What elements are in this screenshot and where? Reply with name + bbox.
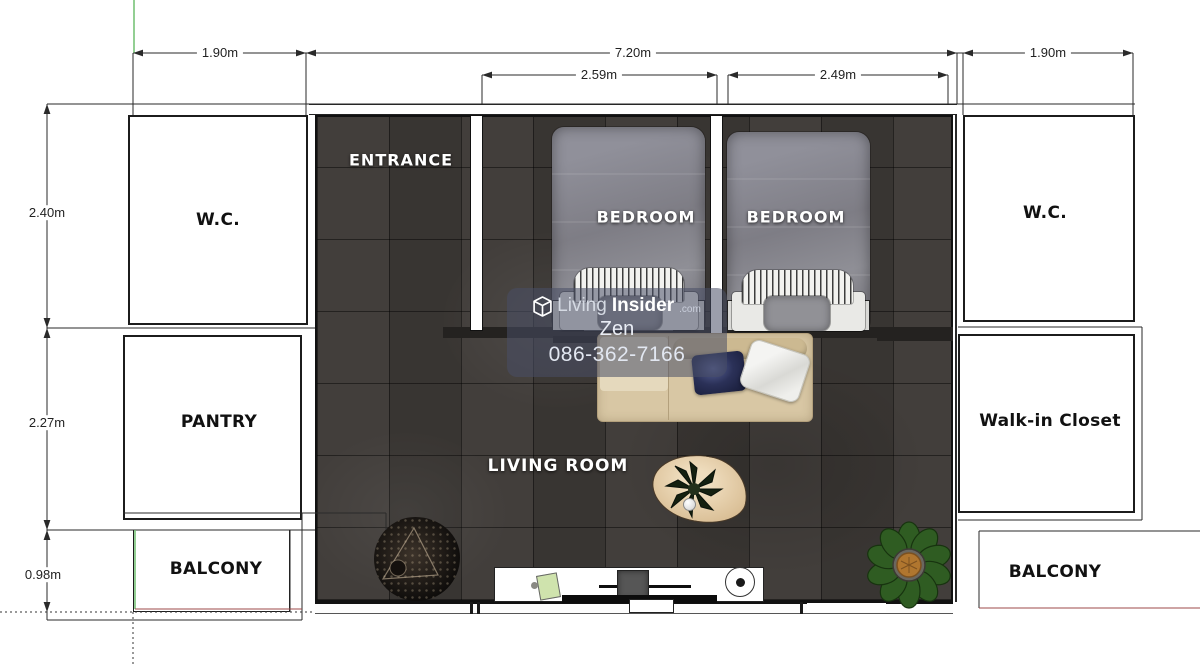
floor-plan: 1.90m 7.20m 1.90m 2.59m 2.49m 2.40m 2.27…	[0, 0, 1200, 667]
label-pantry: PANTRY	[181, 412, 257, 432]
decor-sphere	[683, 498, 696, 511]
watermark-brand-suffix: Insider	[612, 295, 674, 317]
dim-bedroom2-width: 2.49m	[815, 67, 861, 82]
label-entrance: ENTRANCE	[349, 151, 453, 170]
watermark-brand-row: LivingInsider.com	[507, 295, 727, 317]
bedroom-front-wall-step	[877, 331, 953, 341]
watermark-brand-prefix: Living	[557, 295, 607, 317]
table-plant-icon	[663, 458, 725, 520]
label-living-room: LIVING ROOM	[488, 456, 629, 476]
speaker-cone	[736, 578, 745, 587]
label-walk-in-closet: Walk-in Closet	[979, 411, 1121, 431]
small-knob	[531, 582, 538, 589]
watermark: LivingInsider.com Zen 086-362-7166	[507, 288, 727, 377]
watermark-agent-name: Zen	[507, 318, 727, 341]
dim-left-top: 2.40m	[24, 205, 70, 220]
floor-plant	[865, 520, 953, 610]
dim-left-middle: 2.27m	[24, 415, 70, 430]
round-speaker	[725, 567, 755, 597]
label-balcony-left: BALCONY	[170, 559, 263, 579]
label-balcony-right: BALCONY	[1009, 562, 1102, 582]
cube-logo-icon	[533, 296, 552, 317]
tv-console	[494, 567, 764, 602]
window-mullion	[470, 602, 473, 614]
green-tray	[536, 572, 561, 600]
dim-bedroom1-width: 2.59m	[576, 67, 622, 82]
label-bedroom-1: BEDROOM	[597, 208, 696, 227]
window-mullion	[477, 602, 480, 614]
wall-entrance-bedroom1	[470, 115, 483, 331]
dim-top-left: 1.90m	[197, 45, 243, 60]
watermark-phone: 086-362-7166	[507, 343, 727, 367]
dim-top-right: 1.90m	[1025, 45, 1071, 60]
door-step	[629, 599, 674, 613]
label-bedroom-2: BEDROOM	[747, 208, 846, 227]
rug-triangle-pattern	[374, 517, 460, 601]
window-mullion	[800, 602, 803, 614]
dim-top-center: 7.20m	[610, 45, 656, 60]
top-wall	[309, 104, 957, 115]
dim-left-bottom: 0.98m	[20, 567, 66, 582]
bed-2	[727, 132, 870, 331]
watermark-brand-domain: .com	[679, 304, 701, 315]
label-wc-right: W.C.	[1023, 203, 1067, 223]
label-wc-left: W.C.	[196, 210, 240, 230]
bed-2-pillow	[764, 296, 830, 331]
